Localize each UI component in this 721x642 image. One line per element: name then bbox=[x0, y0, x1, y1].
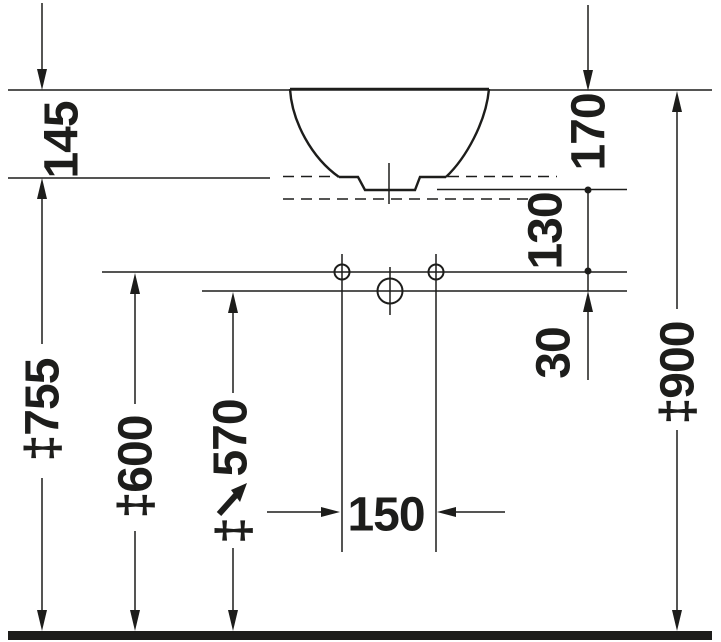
arrow-up-icon bbox=[672, 91, 682, 112]
arrow-down-icon bbox=[672, 610, 682, 631]
arrow-down-icon bbox=[37, 610, 47, 631]
dimension-30: 30 bbox=[528, 291, 594, 380]
arrow-down-icon bbox=[228, 610, 238, 631]
technical-drawing-canvas: 145 170 130 30 ‡755 bbox=[0, 0, 721, 642]
arrow-up-icon bbox=[37, 178, 47, 199]
arrow-right-icon bbox=[321, 507, 340, 517]
dimension-label-900: ‡900 bbox=[652, 322, 705, 425]
dimension-150: 150 bbox=[267, 489, 505, 542]
dimension-145: 145 bbox=[36, 3, 89, 199]
basin-bottom-and-foot bbox=[339, 177, 446, 190]
dimension-170: 170 bbox=[563, 5, 616, 194]
dimension-dot-icon bbox=[585, 268, 592, 275]
arrow-up-icon bbox=[130, 273, 140, 294]
connection-holes bbox=[335, 265, 444, 304]
arrow-down-icon bbox=[130, 610, 140, 631]
dimension-600: ‡600 bbox=[110, 273, 163, 631]
arrow-up-icon bbox=[228, 292, 238, 313]
dimension-label-150: 150 bbox=[347, 489, 424, 542]
dimension-prefix-570: ‡ bbox=[208, 518, 261, 544]
arrow-left-icon bbox=[437, 507, 456, 517]
washbasin-dimension-drawing: 145 170 130 30 ‡755 bbox=[0, 0, 721, 642]
dimension-130: 130 bbox=[520, 190, 592, 291]
dimension-900: ‡900 bbox=[652, 91, 705, 631]
dimension-label-755: ‡755 bbox=[17, 358, 70, 461]
dimension-570: 570 ‡ bbox=[205, 292, 261, 631]
floor-line bbox=[8, 631, 712, 640]
leader-arrow-shaft bbox=[219, 495, 236, 514]
arrow-up-icon bbox=[583, 291, 593, 312]
dimension-label-570: 570 bbox=[205, 399, 258, 476]
basin-left-wall bbox=[290, 89, 339, 177]
dimension-label-170: 170 bbox=[563, 93, 616, 170]
dimension-label-30: 30 bbox=[528, 327, 581, 378]
dimension-755: ‡755 bbox=[17, 196, 70, 631]
dimension-label-145: 145 bbox=[36, 101, 89, 178]
dimension-label-600: ‡600 bbox=[110, 416, 163, 519]
arrow-down-icon bbox=[37, 69, 47, 90]
dimension-label-130: 130 bbox=[520, 192, 573, 269]
arrow-down-icon bbox=[583, 70, 593, 91]
basin-right-wall bbox=[446, 89, 489, 177]
